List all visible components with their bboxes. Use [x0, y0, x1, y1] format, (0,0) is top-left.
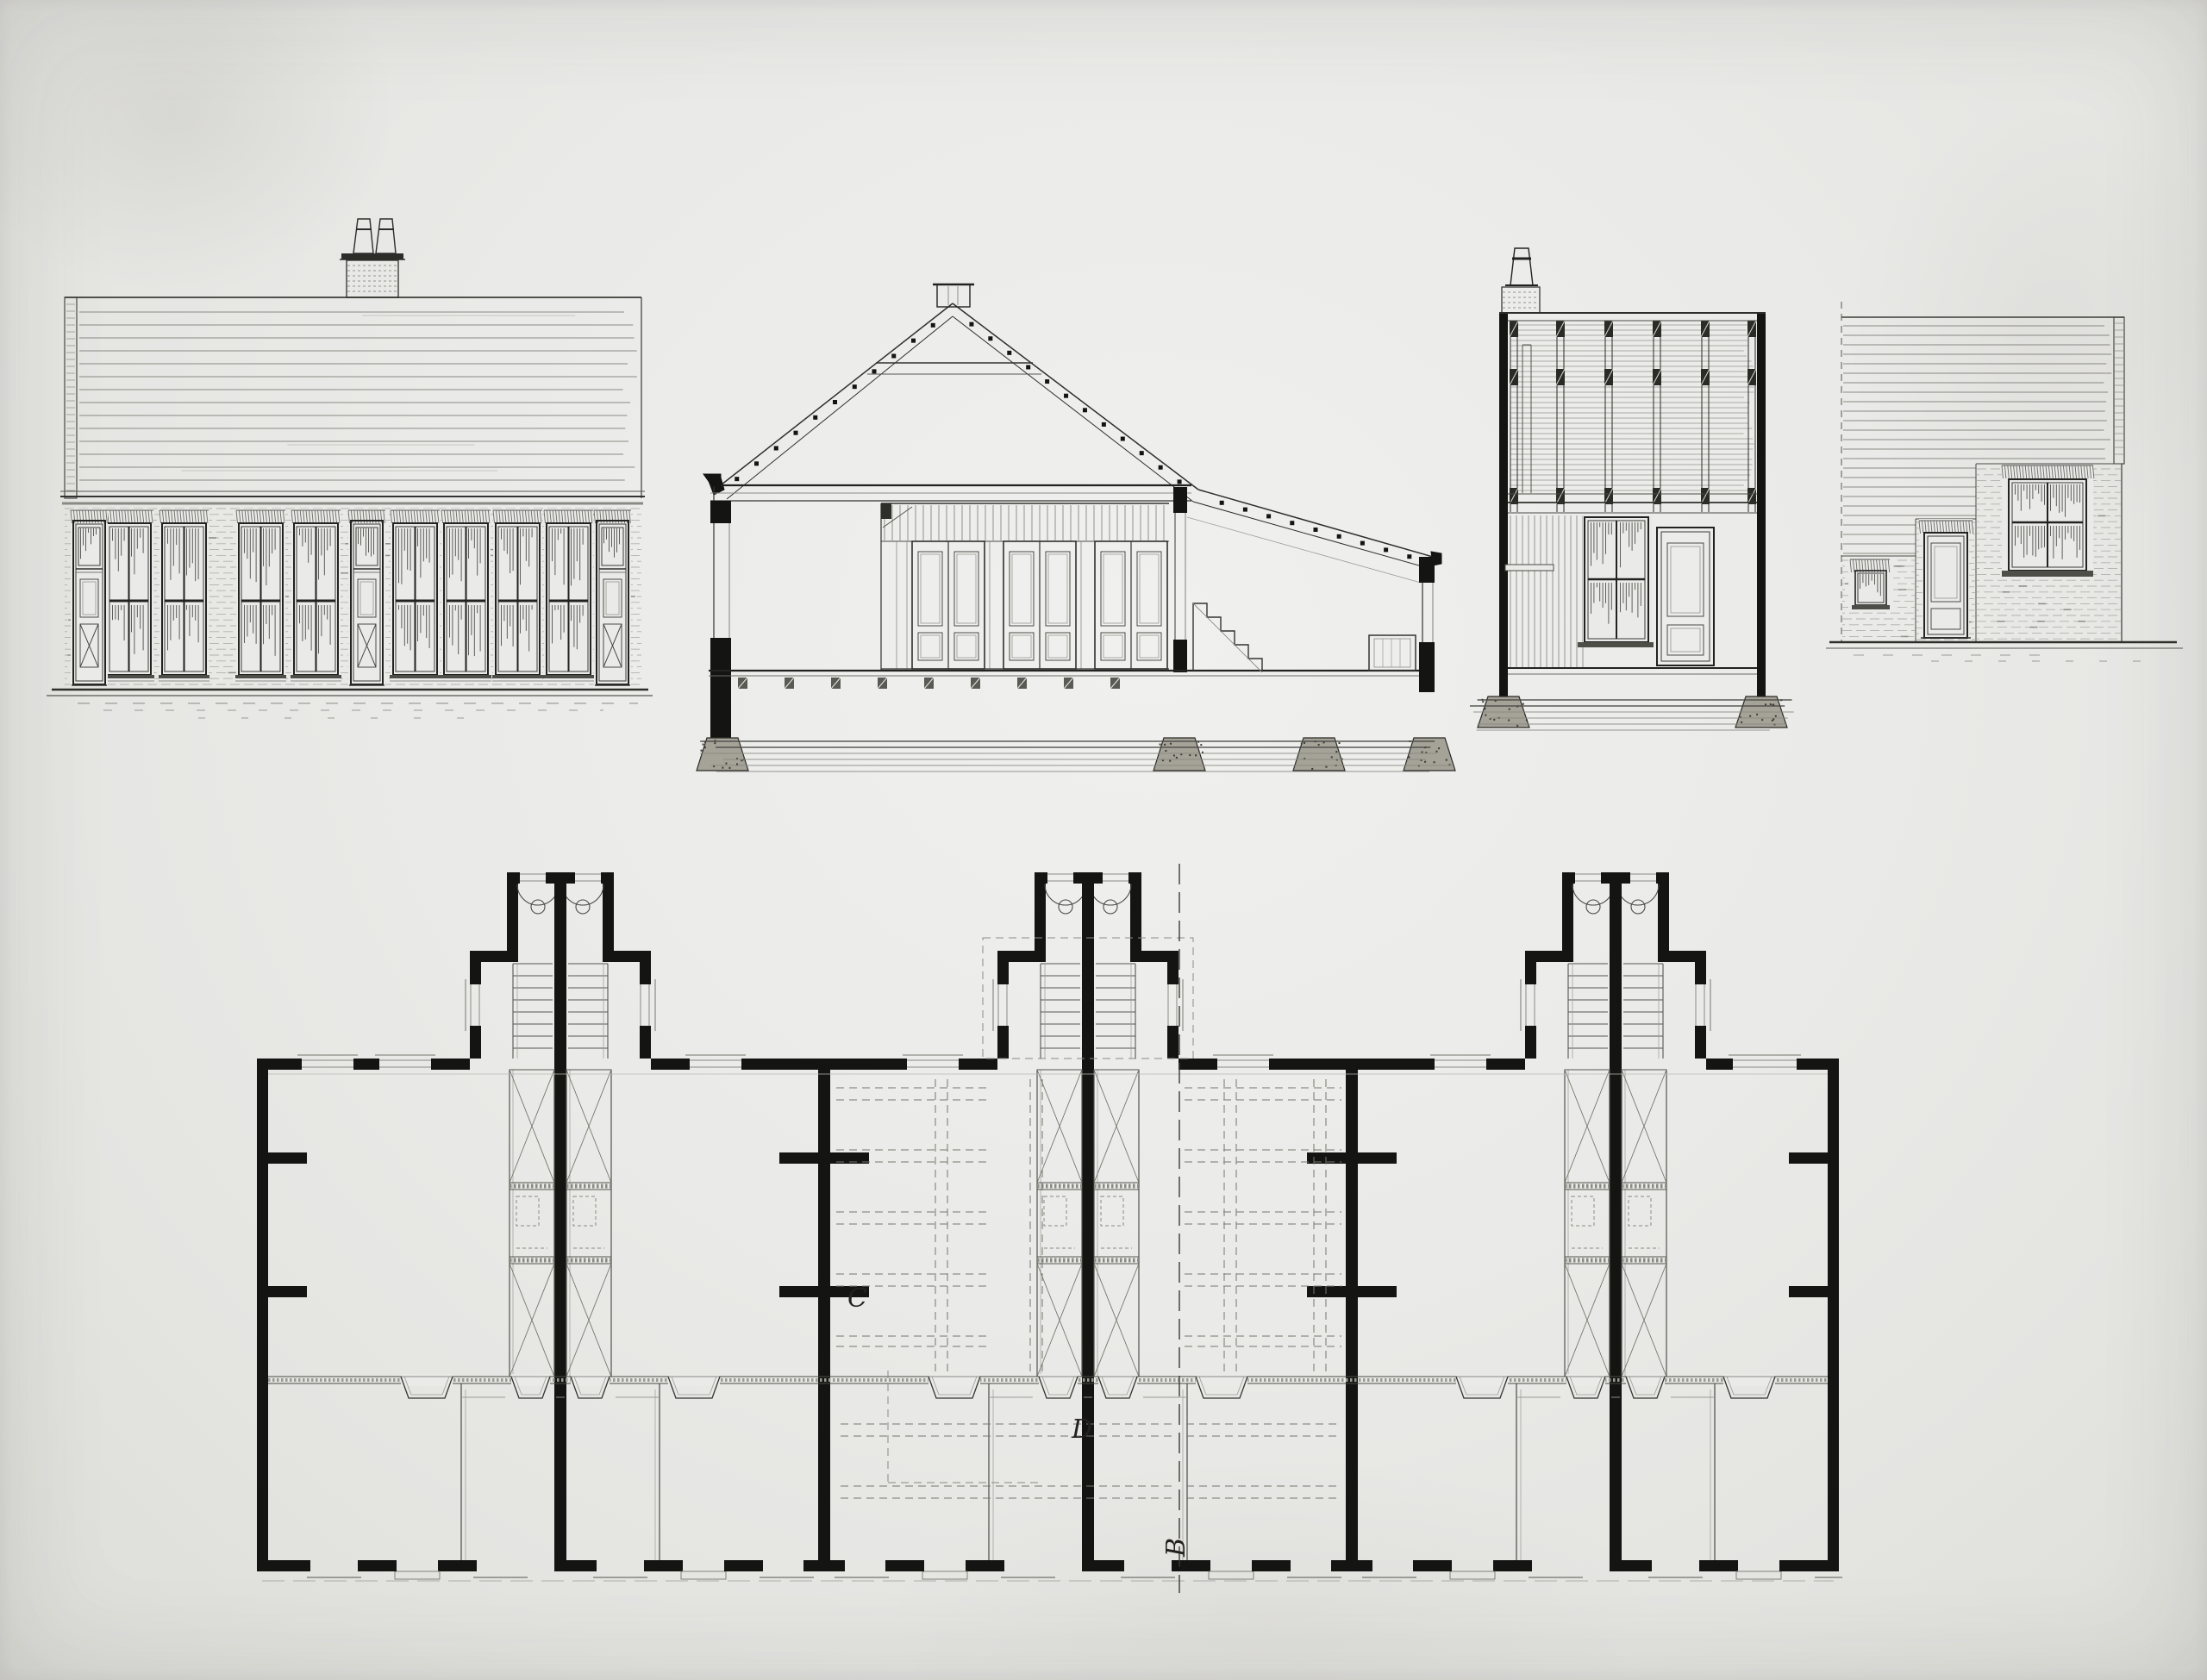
spine-wall — [1610, 872, 1622, 1571]
roof-slopes — [709, 303, 1441, 569]
window — [235, 509, 286, 681]
plan-section-label-c: C — [847, 1283, 867, 1314]
window — [1578, 515, 1654, 647]
stairs — [1193, 603, 1262, 672]
entrance-door — [71, 509, 108, 686]
front-elevation-view — [47, 219, 653, 718]
chimney — [1502, 248, 1540, 313]
lean-to-wall — [1419, 557, 1435, 692]
roof-siding — [65, 297, 641, 498]
ceiling-beam — [710, 485, 1191, 501]
privy-box — [1369, 635, 1416, 671]
window — [543, 509, 594, 681]
brick-wall-window — [1976, 464, 2122, 642]
floor-joists — [709, 671, 1431, 689]
drawing-sheet: C D B — [0, 0, 2207, 1680]
window — [291, 509, 341, 681]
architectural-drawing: C D B — [0, 0, 2207, 1680]
entrance-door — [348, 509, 385, 686]
spine-wall — [1082, 872, 1094, 1571]
floor-plan-view — [257, 864, 1842, 1593]
small-window — [1841, 556, 1916, 636]
exterior-walls — [257, 1059, 1839, 1571]
ground-line — [1826, 642, 2183, 661]
plan-section-label-d: D — [1071, 1415, 1092, 1445]
floor-ground — [1470, 668, 1794, 730]
cross-section-view — [1470, 248, 1794, 730]
door — [1657, 528, 1714, 665]
chimney — [340, 219, 405, 297]
longitudinal-section-view — [697, 284, 1455, 771]
window — [492, 509, 543, 681]
wainscot — [1505, 515, 1583, 667]
mid-wall-openings — [268, 1374, 1828, 1398]
side-elevation-view — [1826, 302, 2183, 661]
left-wall — [703, 474, 731, 738]
entrance-door — [594, 509, 631, 686]
front-wall — [262, 1560, 1842, 1581]
ground-line — [47, 690, 653, 718]
plan-section-label-b: B — [1161, 1538, 1191, 1558]
foundation-ground — [697, 738, 1455, 771]
cupboard-wall — [881, 503, 1169, 671]
window — [390, 509, 441, 681]
window — [103, 509, 154, 681]
rear-wall-windows — [268, 1055, 1828, 1070]
spine-wall — [554, 872, 566, 1571]
entrance-door — [1916, 519, 1976, 642]
rear-wall — [1173, 487, 1421, 672]
eaves-cornice — [60, 491, 645, 503]
attic-roof-structure — [1508, 321, 1757, 513]
window — [441, 509, 491, 681]
window — [159, 509, 209, 681]
